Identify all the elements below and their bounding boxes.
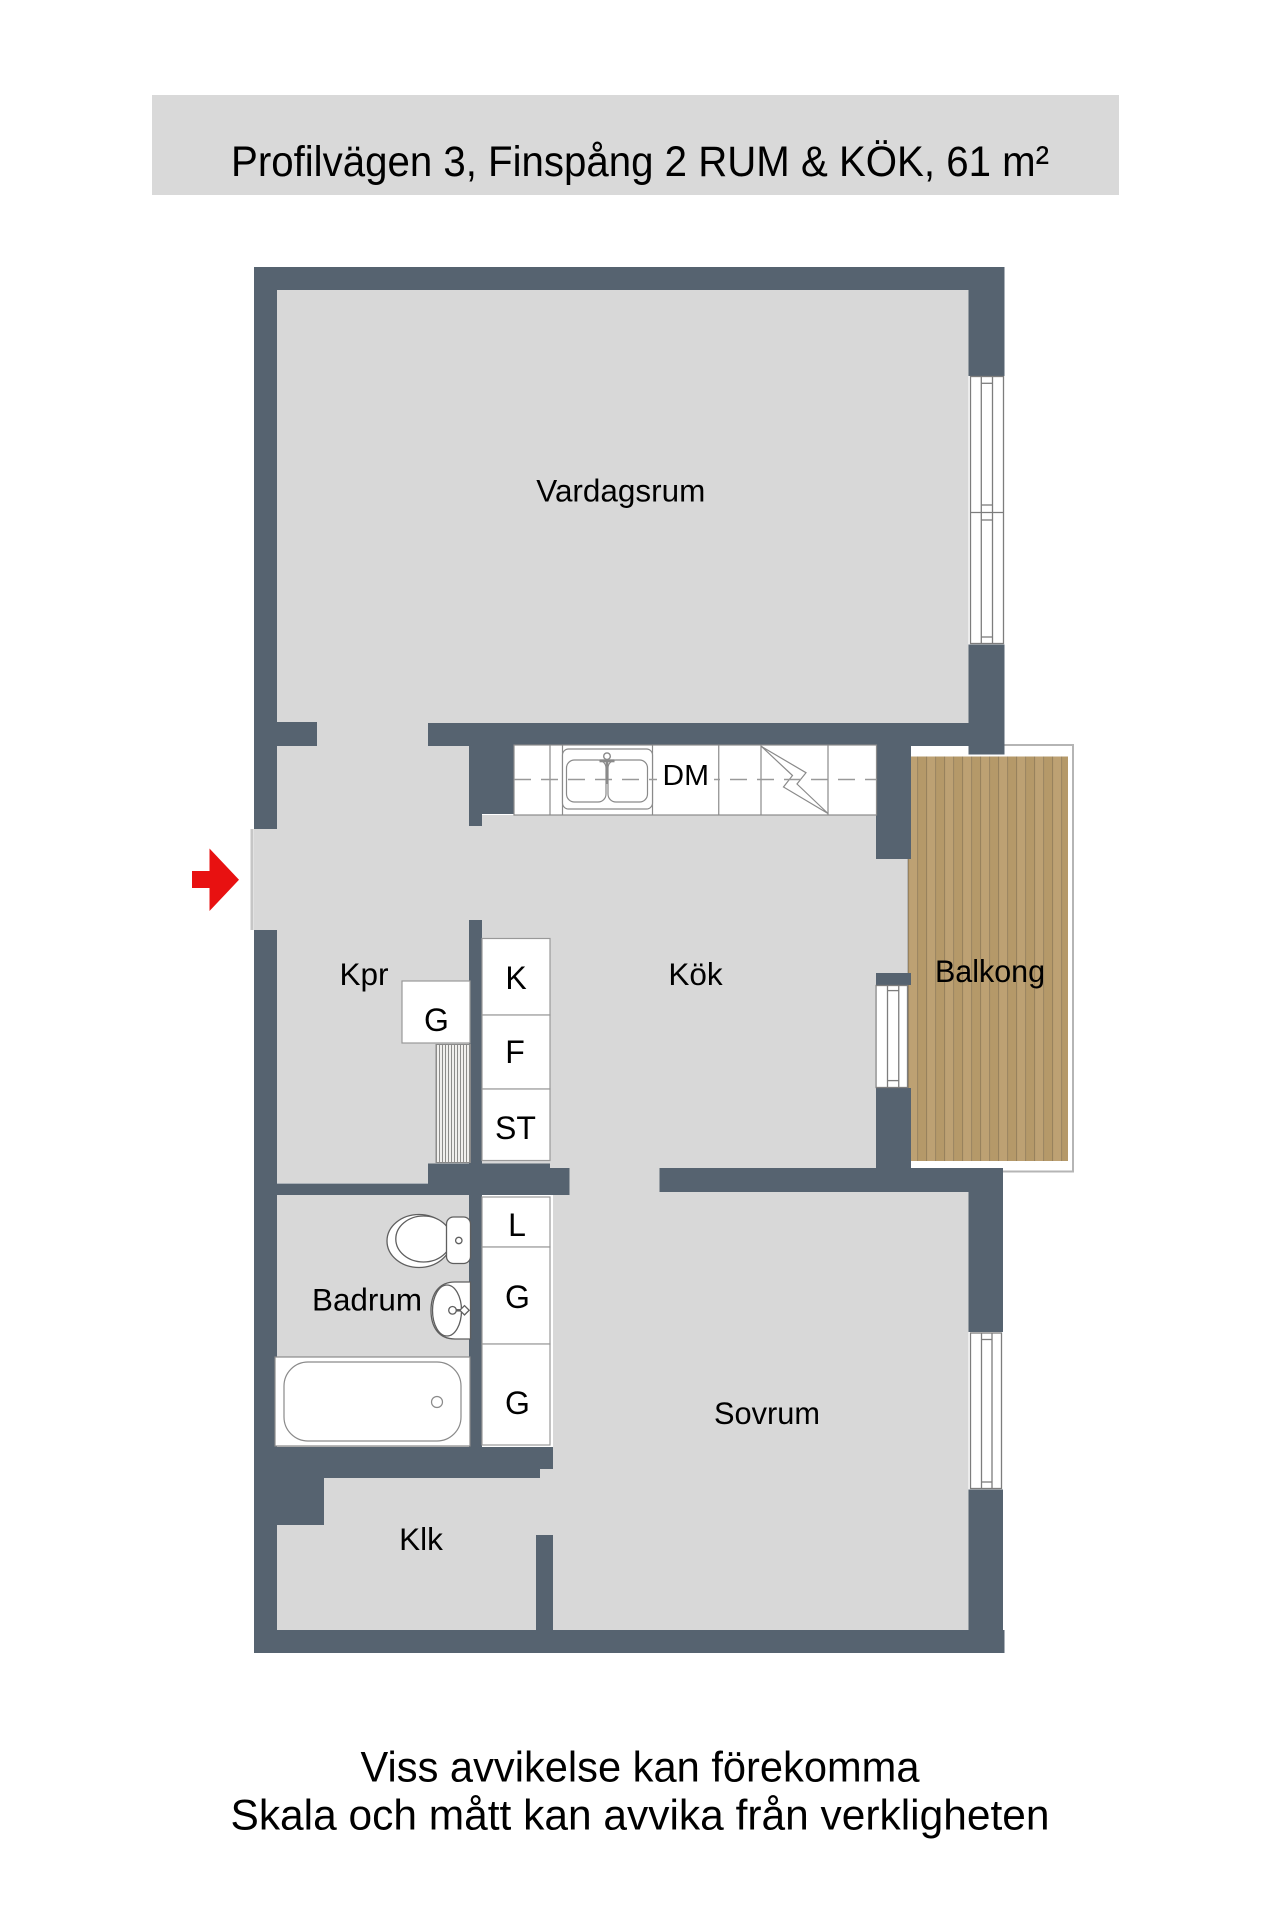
- svg-text:F: F: [505, 1034, 525, 1070]
- svg-text:Kpr: Kpr: [339, 956, 388, 992]
- svg-text:Skala och mått kan avvika från: Skala och mått kan avvika från verklighe…: [231, 1792, 1050, 1840]
- svg-text:Klk: Klk: [399, 1521, 443, 1557]
- svg-text:G: G: [505, 1279, 530, 1315]
- svg-text:G: G: [505, 1385, 530, 1421]
- svg-text:Kök: Kök: [668, 956, 723, 992]
- svg-text:Viss avvikelse kan förekomma: Viss avvikelse kan förekomma: [361, 1744, 920, 1792]
- svg-text:G: G: [424, 1002, 449, 1038]
- svg-text:K: K: [505, 960, 526, 996]
- svg-text:Balkong: Balkong: [935, 953, 1045, 989]
- svg-text:ST: ST: [495, 1110, 536, 1146]
- svg-text:L: L: [508, 1207, 526, 1243]
- svg-text:Sovrum: Sovrum: [714, 1395, 820, 1431]
- svg-text:DM: DM: [663, 760, 710, 792]
- svg-text:Badrum: Badrum: [312, 1282, 422, 1318]
- svg-text:Vardagsrum: Vardagsrum: [536, 473, 705, 509]
- svg-text:Profilvägen 3, Finspång 2 RUM: Profilvägen 3, Finspång 2 RUM & KÖK, 61 …: [231, 138, 1049, 186]
